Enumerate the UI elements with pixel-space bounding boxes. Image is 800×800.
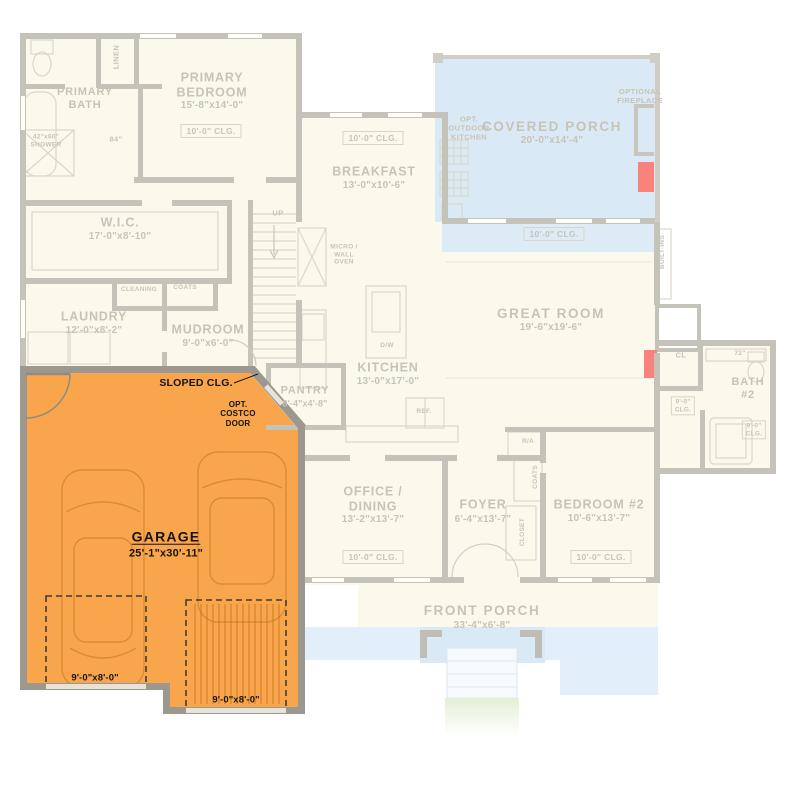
linen-label: LINEN bbox=[113, 45, 122, 70]
wic-label: W.I.C. bbox=[101, 216, 140, 231]
refrigerator-label: REF. bbox=[416, 408, 431, 416]
garage-dims: 25'-1"x30'-11" bbox=[129, 548, 203, 561]
laundry-label: LAUNDRY bbox=[61, 310, 127, 325]
pantry-label: PANTRY bbox=[281, 385, 330, 398]
closet-foyer-label: CLOSET bbox=[519, 518, 527, 546]
bedroom2-clg: 10'-0" CLG. bbox=[570, 550, 631, 564]
coats-foyer-label: COATS bbox=[532, 465, 540, 489]
bath2-clg-right: 9'-0" CLG. bbox=[742, 420, 766, 439]
front-porch-label: FRONT PORCH bbox=[424, 603, 541, 619]
optional-fireplace-label: OPTIONAL FIREPLACE bbox=[617, 88, 663, 106]
office-dining-dims: 13'-2"x13'-7" bbox=[342, 514, 404, 526]
coats-mudroom-label: COATS bbox=[173, 284, 197, 292]
bath2-counter-label: 72" bbox=[734, 350, 745, 358]
foyer-label: FOYER bbox=[459, 498, 506, 513]
breakfast-dims: 13'-0"x10'-6" bbox=[343, 180, 405, 192]
pantry-dims: 8'-4"x4'-8" bbox=[283, 399, 328, 410]
label-layer: LINEN PRIMARY BATH 42"x60" SHOWER 84" PR… bbox=[0, 0, 800, 800]
sloped-clg-label: SLOPED CLG. bbox=[159, 377, 232, 389]
wic-dims: 17'-0"x8'-10" bbox=[89, 231, 151, 243]
bedroom2-label: BEDROOM #2 bbox=[554, 498, 645, 513]
primary-bath-label: PRIMARY BATH bbox=[57, 86, 113, 112]
breakfast-clg: 10'-0" CLG. bbox=[342, 131, 403, 145]
covered-porch-dims: 20'-0"x14'-4" bbox=[521, 135, 583, 147]
bath2-clg-left: 9'-0" CLG. bbox=[671, 396, 695, 415]
opt-costco-door-label: OPT. COSTCO DOOR bbox=[220, 400, 255, 428]
stairs-up-label: UP bbox=[272, 210, 283, 219]
hall-84-label: 84" bbox=[109, 136, 122, 145]
built-ins-label: BUILT-INS bbox=[659, 235, 667, 269]
covered-porch-label: COVERED PORCH bbox=[482, 119, 622, 135]
micro-wall-oven-label: MICRO / WALL OVEN bbox=[330, 244, 357, 267]
dishwasher-label: D/W bbox=[380, 342, 394, 350]
office-dining-clg: 10'-0" CLG. bbox=[342, 550, 403, 564]
laundry-dims: 12'-0"x8'-2" bbox=[66, 325, 123, 337]
primary-bedroom-dims: 15'-8"x14'-0" bbox=[181, 100, 243, 112]
bedroom2-dims: 10'-6"x13'-7" bbox=[568, 513, 630, 525]
mudroom-dims: 9'-0"x6'-0" bbox=[183, 338, 234, 350]
great-room-label: GREAT ROOM bbox=[497, 306, 605, 322]
primary-bedroom-label: PRIMARY BEDROOM bbox=[177, 70, 248, 100]
kitchen-label: KITCHEN bbox=[357, 361, 418, 376]
great-room-clg: 10'-0" CLG. bbox=[523, 227, 584, 241]
foyer-dims: 6'-4"x13'-7" bbox=[455, 514, 512, 526]
primary-bedroom-clg: 10'-0" CLG. bbox=[180, 124, 241, 138]
garage-label: GARAGE bbox=[132, 529, 201, 546]
great-room-dims: 19'-6"x19'-6" bbox=[520, 322, 582, 334]
return-air-label: R/A bbox=[522, 438, 534, 446]
front-porch-dims: 33'-4"x6'-8" bbox=[454, 620, 511, 632]
floor-plan-page: LINEN PRIMARY BATH 42"x60" SHOWER 84" PR… bbox=[0, 0, 800, 800]
bath2-label: BATH #2 bbox=[732, 376, 765, 402]
cleaning-label: CLEANING bbox=[121, 286, 157, 294]
mudroom-label: MUDROOM bbox=[172, 323, 245, 338]
garage-door-left-dims: 9'-0"x8'-0" bbox=[71, 672, 118, 683]
closet-cl-label: CL bbox=[676, 352, 687, 361]
breakfast-label: BREAKFAST bbox=[332, 165, 416, 180]
kitchen-dims: 13'-0"x17'-0" bbox=[357, 376, 419, 388]
garage-door-right-dims: 9'-0"x8'-0" bbox=[212, 694, 259, 705]
office-dining-label: OFFICE / DINING bbox=[343, 484, 402, 514]
shower-label: 42"x60" SHOWER bbox=[30, 133, 61, 148]
